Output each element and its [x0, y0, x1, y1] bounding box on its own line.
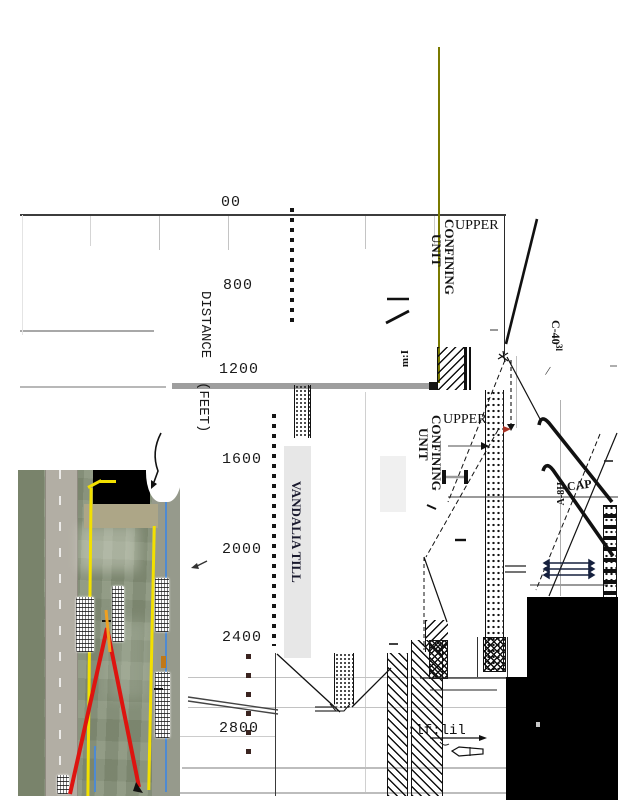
- red-route-left: [70, 628, 107, 794]
- white-dot-on-mask: [536, 722, 540, 727]
- diagonal-line: [277, 654, 340, 712]
- ibeam-bar: [464, 470, 468, 484]
- slash-mark-line: [386, 311, 409, 323]
- double-arrow-group: [544, 560, 594, 578]
- red-route-right: [107, 628, 139, 787]
- diagonal-dashed: [448, 360, 505, 502]
- diagonal-line: [506, 219, 537, 344]
- orange-apex-mark: [106, 610, 110, 652]
- funnel-edge: [424, 557, 447, 622]
- thick-diagonal-2: [543, 466, 613, 556]
- diagonal-dashed: [426, 430, 498, 557]
- small-arrow-head: [191, 563, 199, 569]
- small-arrow-line: [197, 561, 207, 566]
- leader-arrow-head: [479, 735, 487, 741]
- diagonal-line: [507, 357, 540, 419]
- dash-mark: [427, 505, 436, 509]
- figure-canvas: 00 800 1200 1600 2000 2400 2800 DISTANCE…: [0, 0, 618, 800]
- diagonal-line: [549, 433, 617, 596]
- small-curve-mark: [440, 742, 449, 745]
- cigar-pointer: [452, 747, 483, 756]
- thick-diagonal-1: [539, 419, 612, 502]
- black-mask-rect: [506, 677, 527, 800]
- arrow-head: [481, 442, 489, 450]
- diagonal-line: [352, 668, 391, 707]
- ibeam-bar: [442, 470, 446, 484]
- black-mask-rect: [527, 597, 618, 800]
- scribble-mark: [498, 351, 508, 362]
- callout-curve: [154, 433, 161, 482]
